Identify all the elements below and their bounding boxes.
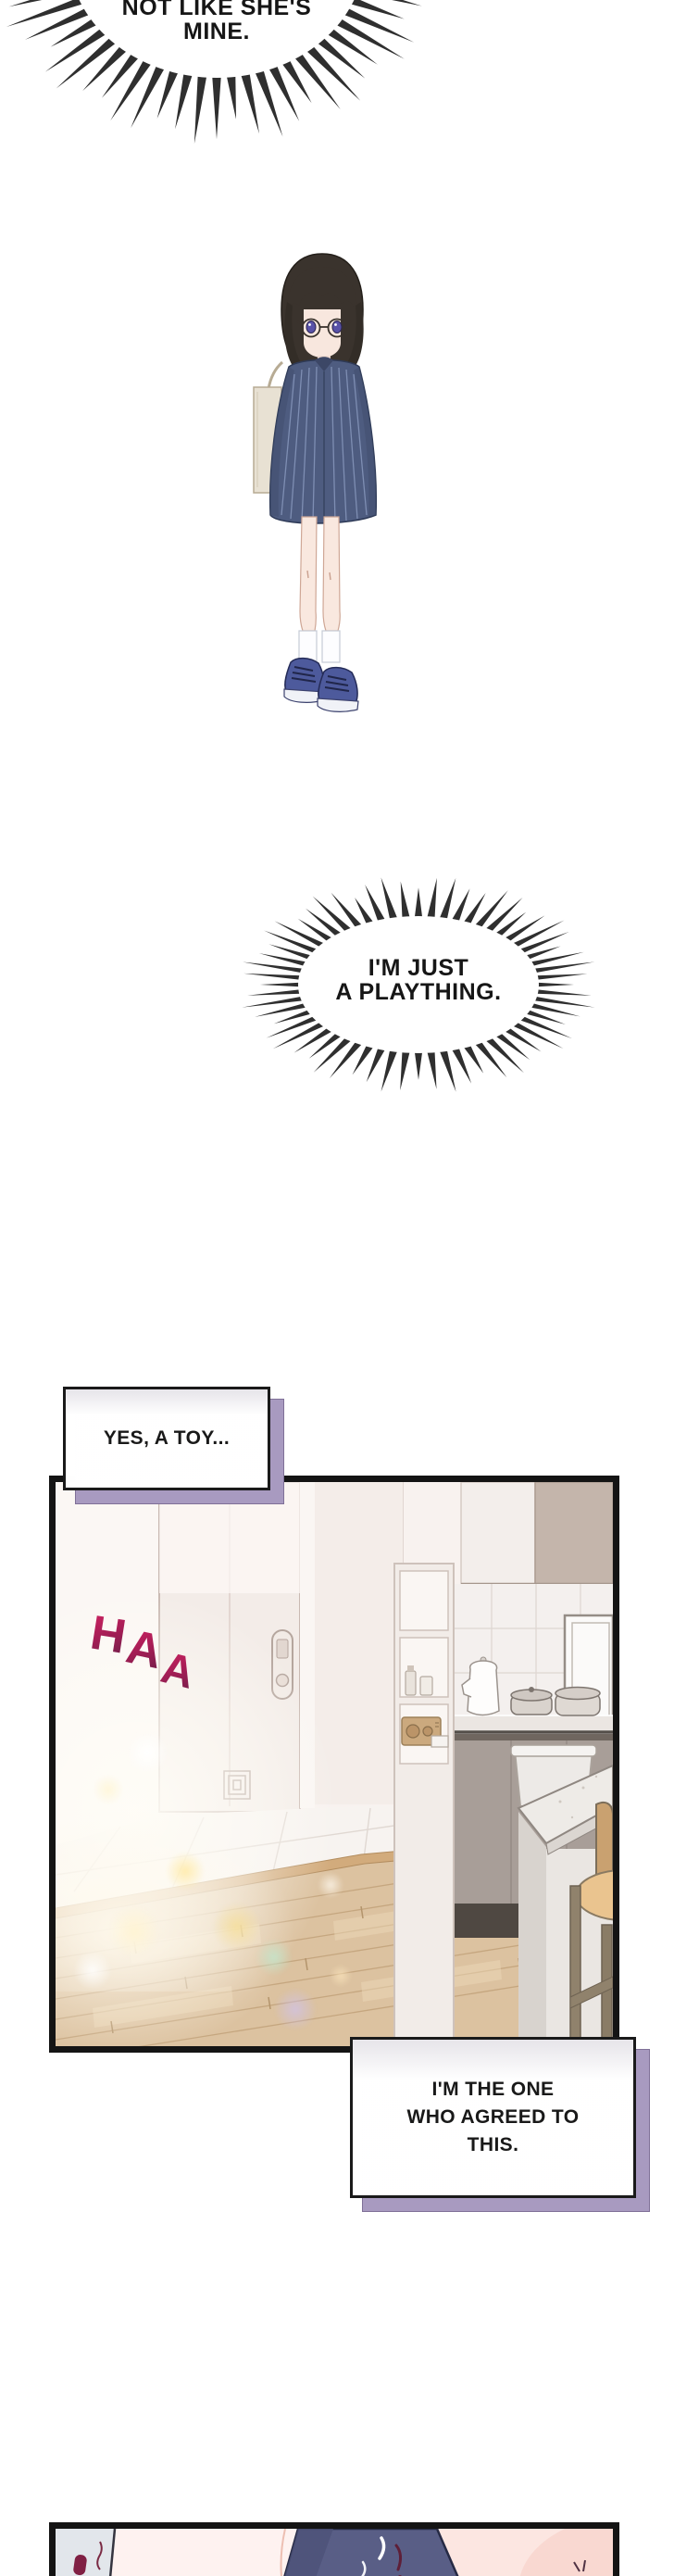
kitchen-scene	[56, 1482, 613, 2046]
panel-closeup	[49, 2522, 619, 2576]
shelf-unit	[394, 1564, 454, 2046]
door-keypad	[272, 1630, 293, 1699]
comic-page: NOT LIKE SHE'S MINE.	[0, 0, 674, 2576]
upper-cabinets	[461, 1482, 613, 1584]
sfx-haa: HAA	[89, 1610, 199, 1667]
wall-sliver	[56, 2529, 115, 2576]
legs	[300, 517, 340, 631]
shelf-small-box	[431, 1736, 448, 1747]
panel-kitchen: HAA	[49, 1476, 619, 2053]
socks	[299, 631, 340, 662]
caption-agreed-text: I'M THE ONE WHO AGREED TO THIS.	[406, 2076, 579, 2159]
face	[304, 309, 341, 358]
striped-shirt	[270, 357, 377, 523]
caption-yes-a-toy-text: YES, A TOY...	[104, 1425, 230, 1452]
character-illustration	[246, 248, 383, 726]
caption-yes-a-toy: YES, A TOY...	[63, 1387, 270, 1490]
speech-bubble-top-text: NOT LIKE SHE'S MINE.	[78, 0, 356, 44]
sneakers	[284, 659, 358, 712]
caption-agreed: I'M THE ONE WHO AGREED TO THIS.	[350, 2037, 636, 2198]
speech-bubble-middle-text: I'M JUST A PLAYTHING.	[280, 956, 557, 1004]
closeup-scene	[56, 2529, 613, 2576]
